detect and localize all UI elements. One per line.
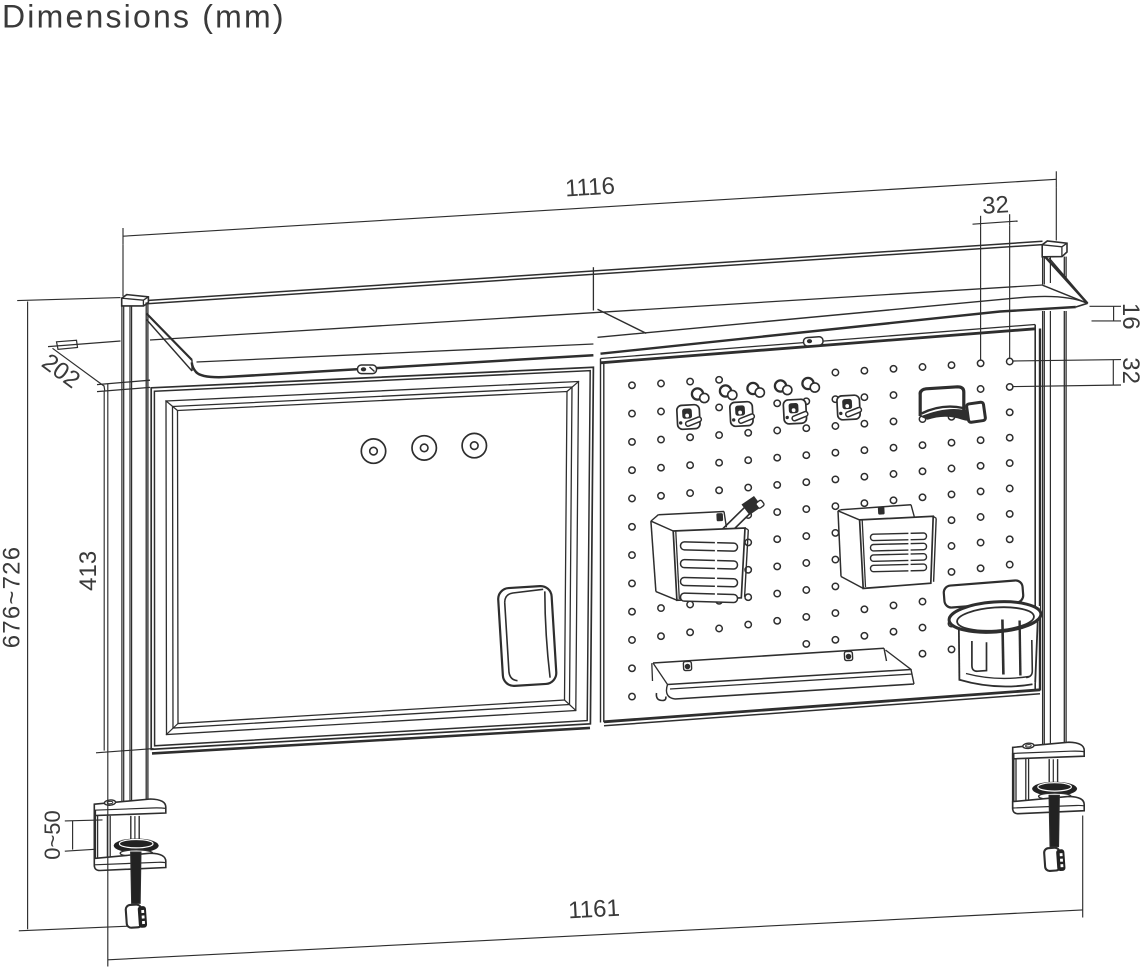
svg-text:Dimensions (mm): Dimensions (mm) xyxy=(2,0,286,35)
svg-text:676~726: 676~726 xyxy=(0,546,26,649)
svg-text:1161: 1161 xyxy=(568,895,621,925)
svg-text:32: 32 xyxy=(1117,357,1142,384)
svg-text:0~50: 0~50 xyxy=(40,810,65,860)
svg-text:16: 16 xyxy=(1117,303,1142,330)
svg-text:32: 32 xyxy=(981,191,1009,220)
svg-text:1116: 1116 xyxy=(564,173,615,203)
svg-text:413: 413 xyxy=(75,551,102,591)
